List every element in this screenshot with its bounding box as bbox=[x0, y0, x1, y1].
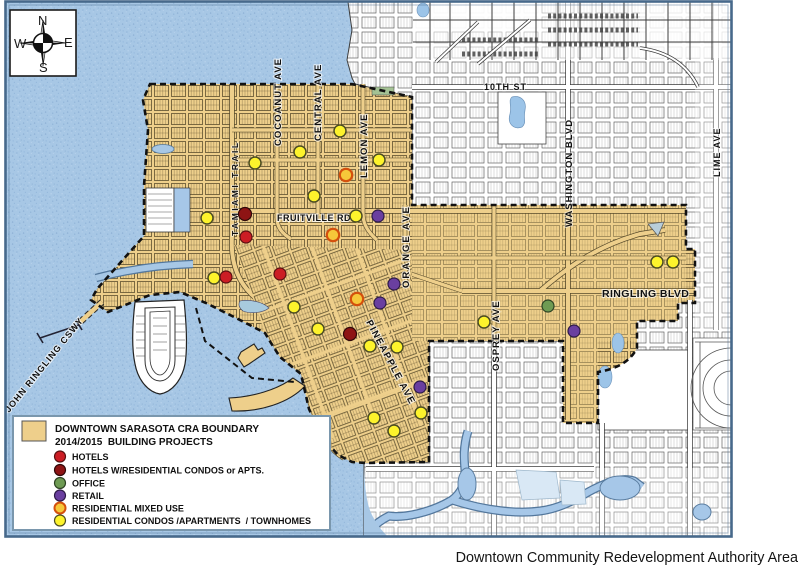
svg-text:LIME AVE: LIME AVE bbox=[712, 127, 722, 177]
svg-text:OFFICE: OFFICE bbox=[72, 479, 105, 489]
svg-text:LEMON AVE: LEMON AVE bbox=[359, 114, 370, 178]
svg-text:OSPREY AVE: OSPREY AVE bbox=[491, 300, 502, 371]
svg-text:TAMIAMI TRAIL: TAMIAMI TRAIL bbox=[230, 140, 240, 236]
svg-text:DOWNTOWN SARASOTA CRA BOUNDARY: DOWNTOWN SARASOTA CRA BOUNDARY bbox=[55, 424, 259, 435]
svg-text:RESIDENTIAL CONDOS /APARTMENTS: RESIDENTIAL CONDOS /APARTMENTS / TOWNHOM… bbox=[72, 516, 311, 526]
svg-text:HOTELS W/RESIDENTIAL CONDOS or: HOTELS W/RESIDENTIAL CONDOS or APTS. bbox=[72, 466, 264, 476]
svg-text:RINGLING BLVD: RINGLING BLVD bbox=[602, 288, 689, 300]
svg-text:RESIDENTIAL MIXED USE: RESIDENTIAL MIXED USE bbox=[72, 504, 184, 514]
svg-text:RETAIL: RETAIL bbox=[72, 491, 104, 501]
svg-text:COCOANUT AVE: COCOANUT AVE bbox=[273, 58, 284, 146]
svg-text:Downtown Community Redevelopme: Downtown Community Redevelopment Authori… bbox=[456, 550, 798, 566]
svg-text:FRUITVILLE RD: FRUITVILLE RD bbox=[277, 213, 351, 223]
svg-text:ORANGE AVE: ORANGE AVE bbox=[401, 205, 412, 288]
svg-text:10TH ST: 10TH ST bbox=[484, 82, 527, 92]
svg-text:WASHINGTON BLVD: WASHINGTON BLVD bbox=[564, 119, 575, 227]
svg-text:CENTRAL AVE: CENTRAL AVE bbox=[313, 64, 324, 141]
svg-text:E: E bbox=[64, 35, 73, 50]
svg-text:2014/2015 BUILDING PROJECTS: 2014/2015 BUILDING PROJECTS bbox=[55, 437, 213, 448]
svg-text:HOTELS: HOTELS bbox=[72, 452, 109, 462]
